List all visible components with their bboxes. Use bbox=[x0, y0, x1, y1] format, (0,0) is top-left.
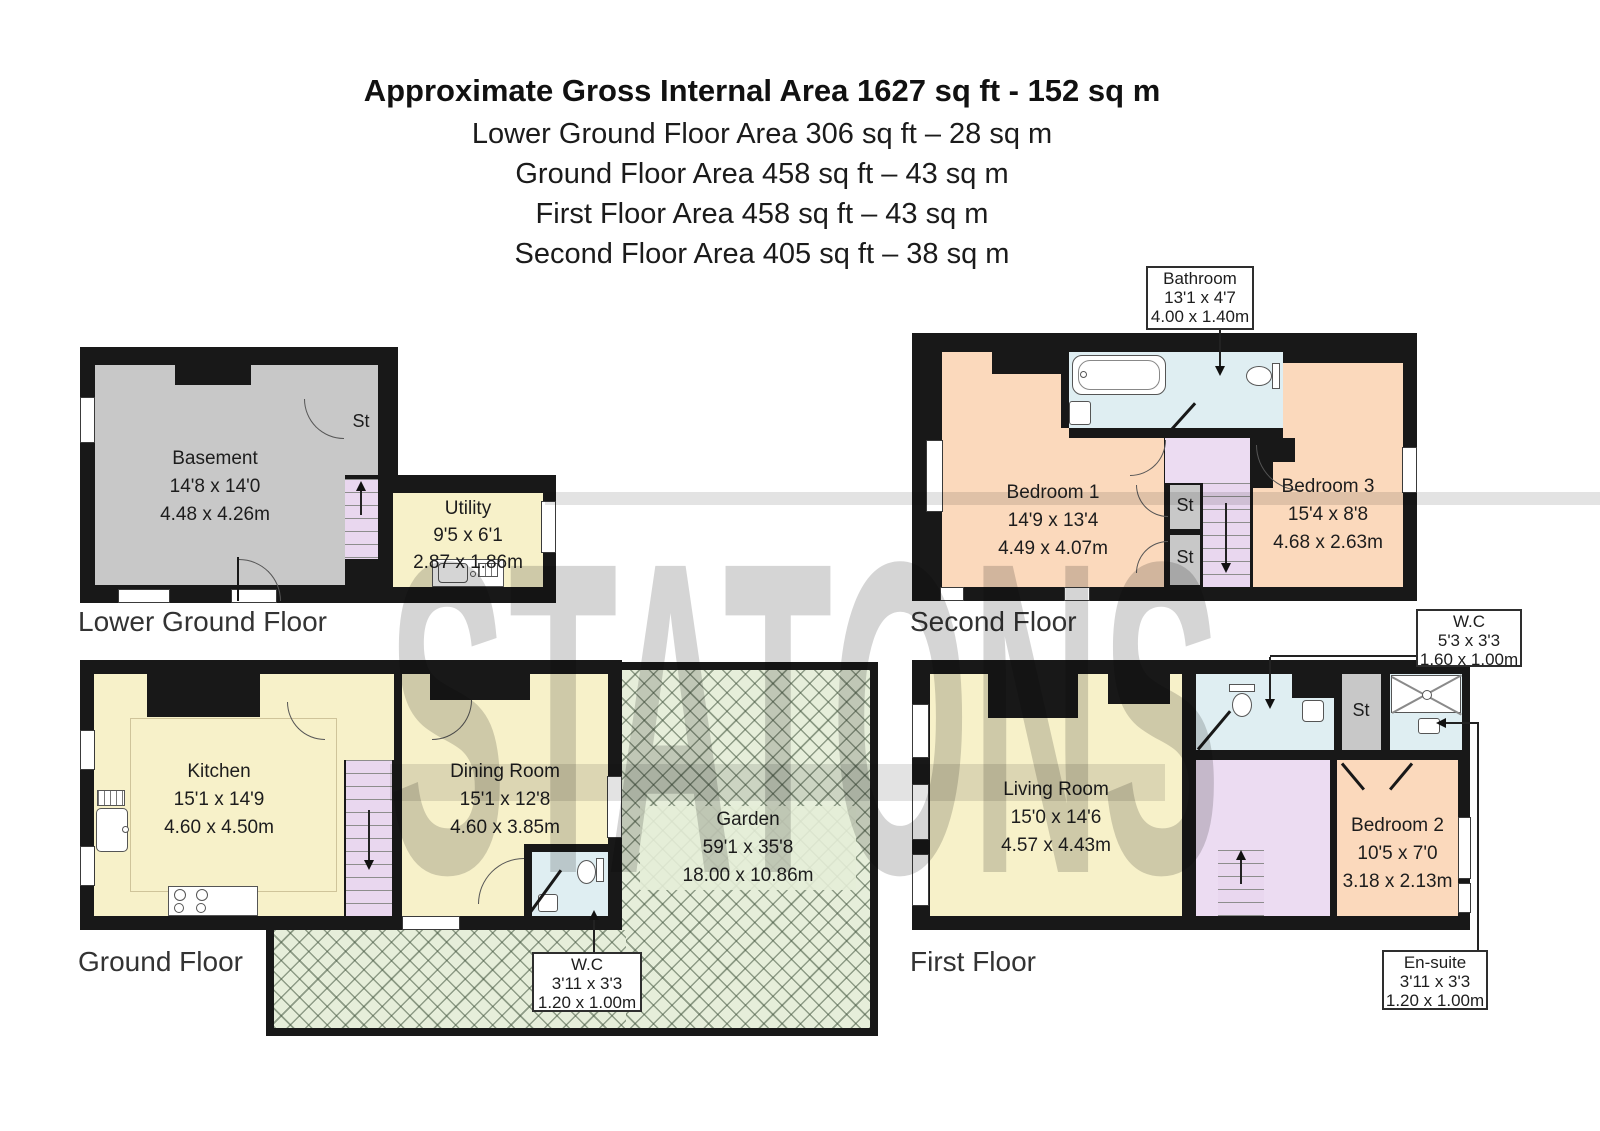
wc-ground-callout: W.C 3'11 x 3'3 1.20 x 1.00m bbox=[532, 952, 642, 1012]
wall-notch bbox=[175, 365, 251, 385]
landing bbox=[1165, 438, 1250, 483]
room-size-metric: 18.00 x 10.86m bbox=[640, 862, 856, 890]
room-name: Bathroom bbox=[1148, 269, 1252, 288]
room-size-imperial: 3'11 x 3'3 bbox=[534, 974, 640, 993]
tap-icon bbox=[1080, 371, 1087, 378]
ground-floor-label: Ground Floor bbox=[78, 946, 243, 978]
callout-line bbox=[1219, 330, 1221, 368]
wall-notch bbox=[988, 674, 1078, 718]
room-size-imperial: 15'1 x 12'8 bbox=[402, 786, 608, 814]
room-size-metric: 4.48 x 4.26m bbox=[115, 501, 315, 529]
room-size-metric: 4.49 x 4.07m bbox=[942, 535, 1164, 563]
wall-notch bbox=[1108, 674, 1170, 704]
room-size-metric: 1.20 x 1.00m bbox=[1384, 991, 1486, 1010]
room-size-metric: 1.60 x 1.00m bbox=[1418, 650, 1520, 669]
area-line-second: Second Floor Area 405 sq ft – 38 sq m bbox=[0, 238, 1524, 271]
wall bbox=[524, 844, 608, 852]
storage-label: St bbox=[338, 411, 384, 432]
bedroom2-label: Bedroom 2 10'5 x 7'0 3.18 x 2.13m bbox=[1337, 812, 1458, 896]
stairs-arrow-icon bbox=[1221, 563, 1231, 573]
bedroom3-label: Bedroom 3 15'4 x 8'8 4.68 x 2.63m bbox=[1253, 473, 1403, 557]
toilet-icon bbox=[577, 860, 596, 884]
room-name: Dining Room bbox=[402, 758, 608, 786]
callout-line bbox=[1270, 655, 1416, 657]
window bbox=[940, 587, 964, 601]
room-size-imperial: 9'5 x 6'1 bbox=[393, 522, 543, 549]
room-name: W.C bbox=[534, 955, 640, 974]
room-size-imperial: 5'3 x 3'3 bbox=[1418, 631, 1520, 650]
toilet-tank-icon bbox=[596, 858, 604, 882]
bathroom-callout: Bathroom 13'1 x 4'7 4.00 x 1.40m bbox=[1146, 266, 1254, 330]
room-size-metric: 4.68 x 2.63m bbox=[1253, 529, 1403, 557]
plan-first: Living Room 15'0 x 14'6 4.57 x 4.43m Bed… bbox=[912, 660, 1472, 932]
ensuite-callout: En-suite 3'11 x 3'3 1.20 x 1.00m bbox=[1382, 950, 1488, 1010]
window bbox=[402, 916, 460, 930]
hallway bbox=[344, 674, 394, 760]
callout-line bbox=[1446, 722, 1479, 724]
toilet-icon bbox=[1246, 366, 1272, 386]
burner-icon bbox=[196, 903, 206, 913]
wall bbox=[392, 760, 402, 916]
room-size-metric: 1.20 x 1.00m bbox=[534, 993, 640, 1012]
stairs-direction-line bbox=[1225, 503, 1227, 565]
wall bbox=[1069, 428, 1165, 438]
window bbox=[607, 776, 622, 838]
callout-arrow bbox=[1215, 366, 1225, 376]
burner-icon bbox=[196, 889, 208, 901]
room-name: En-suite bbox=[1384, 953, 1486, 972]
room-size-metric: 4.60 x 3.85m bbox=[402, 814, 608, 842]
area-line-lower-ground: Lower Ground Floor Area 306 sq ft – 28 s… bbox=[0, 118, 1524, 151]
bathtub-inner-icon bbox=[1078, 360, 1160, 390]
wall-notch bbox=[1292, 674, 1334, 698]
room-size-imperial: 10'5 x 7'0 bbox=[1337, 840, 1458, 868]
stairs-arrow-icon bbox=[364, 860, 374, 870]
window bbox=[912, 784, 929, 840]
room-size-imperial: 3'11 x 3'3 bbox=[1384, 972, 1486, 991]
sink-icon bbox=[1069, 401, 1091, 425]
room-size-metric: 4.60 x 4.50m bbox=[94, 814, 344, 842]
room-name: Utility bbox=[393, 495, 543, 522]
window bbox=[912, 854, 929, 906]
lower-ground-floor-label: Lower Ground Floor bbox=[78, 606, 327, 638]
stairs-direction-line bbox=[1240, 858, 1242, 884]
utility-label: Utility 9'5 x 6'1 2.87 x 1.86m bbox=[393, 495, 543, 576]
room-name: Kitchen bbox=[94, 758, 344, 786]
room-name: Bedroom 2 bbox=[1337, 812, 1458, 840]
toilet-tank-icon bbox=[1272, 363, 1280, 389]
window bbox=[1458, 883, 1471, 913]
wall bbox=[1061, 340, 1069, 428]
area-line-first: First Floor Area 458 sq ft – 43 sq m bbox=[0, 198, 1524, 231]
window bbox=[80, 846, 95, 886]
stairs-direction-line bbox=[360, 489, 362, 515]
storage-label: St bbox=[1162, 547, 1208, 568]
callout-line bbox=[1269, 657, 1271, 701]
callout-arrow bbox=[1265, 699, 1275, 709]
room-size-metric: 2.87 x 1.86m bbox=[393, 549, 543, 576]
room-size-imperial: 15'4 x 8'8 bbox=[1253, 501, 1403, 529]
stairs-direction-line bbox=[368, 810, 370, 862]
storage-label: St bbox=[1336, 700, 1386, 721]
window bbox=[1064, 587, 1090, 601]
room-size-imperial: 59'1 x 35'8 bbox=[640, 834, 856, 862]
page-title: Approximate Gross Internal Area 1627 sq … bbox=[0, 73, 1524, 109]
living-label: Living Room 15'0 x 14'6 4.57 x 4.43m bbox=[930, 776, 1182, 860]
sink-icon bbox=[1302, 700, 1324, 722]
callout-line bbox=[1477, 723, 1479, 950]
floorplan-sheet: Approximate Gross Internal Area 1627 sq … bbox=[0, 0, 1600, 1131]
room-name: Bedroom 3 bbox=[1253, 473, 1403, 501]
basement-label: Basement 14'8 x 14'0 4.48 x 4.26m bbox=[115, 445, 315, 529]
room-size-imperial: 14'9 x 13'4 bbox=[942, 507, 1164, 535]
callout-line bbox=[593, 918, 595, 952]
room-size-imperial: 15'1 x 14'9 bbox=[94, 786, 344, 814]
shower-drain-icon bbox=[1422, 690, 1432, 700]
window bbox=[118, 589, 170, 603]
kitchen-label: Kitchen 15'1 x 14'9 4.60 x 4.50m bbox=[94, 758, 344, 842]
wall-notch bbox=[147, 674, 260, 717]
window bbox=[541, 501, 556, 553]
first-floor-label: First Floor bbox=[910, 946, 1036, 978]
wall-notch bbox=[430, 674, 530, 700]
room-name: Bedroom 1 bbox=[942, 479, 1164, 507]
room-name: W.C bbox=[1418, 612, 1520, 631]
plan-lower-ground: Basement 14'8 x 14'0 4.48 x 4.26m Utilit… bbox=[80, 347, 558, 605]
window bbox=[912, 704, 929, 758]
wall bbox=[524, 844, 532, 916]
wall-notch bbox=[992, 352, 1062, 374]
stairs-arrow-icon bbox=[356, 481, 366, 491]
storage-label: St bbox=[1162, 495, 1208, 516]
stairs-arrow-icon bbox=[1236, 850, 1246, 860]
toilet-icon bbox=[1232, 693, 1252, 717]
wall bbox=[1196, 750, 1462, 760]
garden-label: Garden 59'1 x 35'8 18.00 x 10.86m bbox=[640, 806, 856, 890]
room-size-metric: 4.00 x 1.40m bbox=[1148, 307, 1252, 326]
toilet-tank-icon bbox=[1229, 684, 1255, 692]
second-floor-label: Second Floor bbox=[910, 606, 1077, 638]
bedroom1-label: Bedroom 1 14'9 x 13'4 4.49 x 4.07m bbox=[942, 479, 1164, 563]
area-line-ground: Ground Floor Area 458 sq ft – 43 sq m bbox=[0, 158, 1524, 191]
room-size-metric: 3.18 x 2.13m bbox=[1337, 868, 1458, 896]
window bbox=[80, 730, 95, 770]
room-size-imperial: 15'0 x 14'6 bbox=[930, 804, 1182, 832]
room-size-metric: 4.57 x 4.43m bbox=[930, 832, 1182, 860]
wc-first-callout: W.C 5'3 x 3'3 1.60 x 1.00m bbox=[1416, 609, 1522, 667]
window bbox=[1402, 447, 1417, 493]
room-name: Basement bbox=[115, 445, 315, 473]
window bbox=[1458, 817, 1471, 879]
callout-arrow bbox=[589, 910, 599, 920]
room-size-imperial: 14'8 x 14'0 bbox=[115, 473, 315, 501]
room-size-imperial: 13'1 x 4'7 bbox=[1148, 288, 1252, 307]
room-name: Garden bbox=[640, 806, 856, 834]
room-name: Living Room bbox=[930, 776, 1182, 804]
callout-arrow bbox=[1436, 718, 1446, 728]
shower-icon bbox=[1391, 675, 1461, 713]
burner-icon bbox=[174, 889, 186, 901]
window bbox=[926, 440, 943, 512]
plan-second: Bedroom 1 14'9 x 13'4 4.49 x 4.07m Bedro… bbox=[912, 333, 1420, 601]
wall bbox=[1200, 428, 1283, 438]
window bbox=[80, 397, 95, 443]
dining-label: Dining Room 15'1 x 12'8 4.60 x 3.85m bbox=[402, 758, 608, 842]
burner-icon bbox=[174, 903, 184, 913]
plan-ground: Kitchen 15'1 x 14'9 4.60 x 4.50m Dining … bbox=[80, 660, 880, 1040]
